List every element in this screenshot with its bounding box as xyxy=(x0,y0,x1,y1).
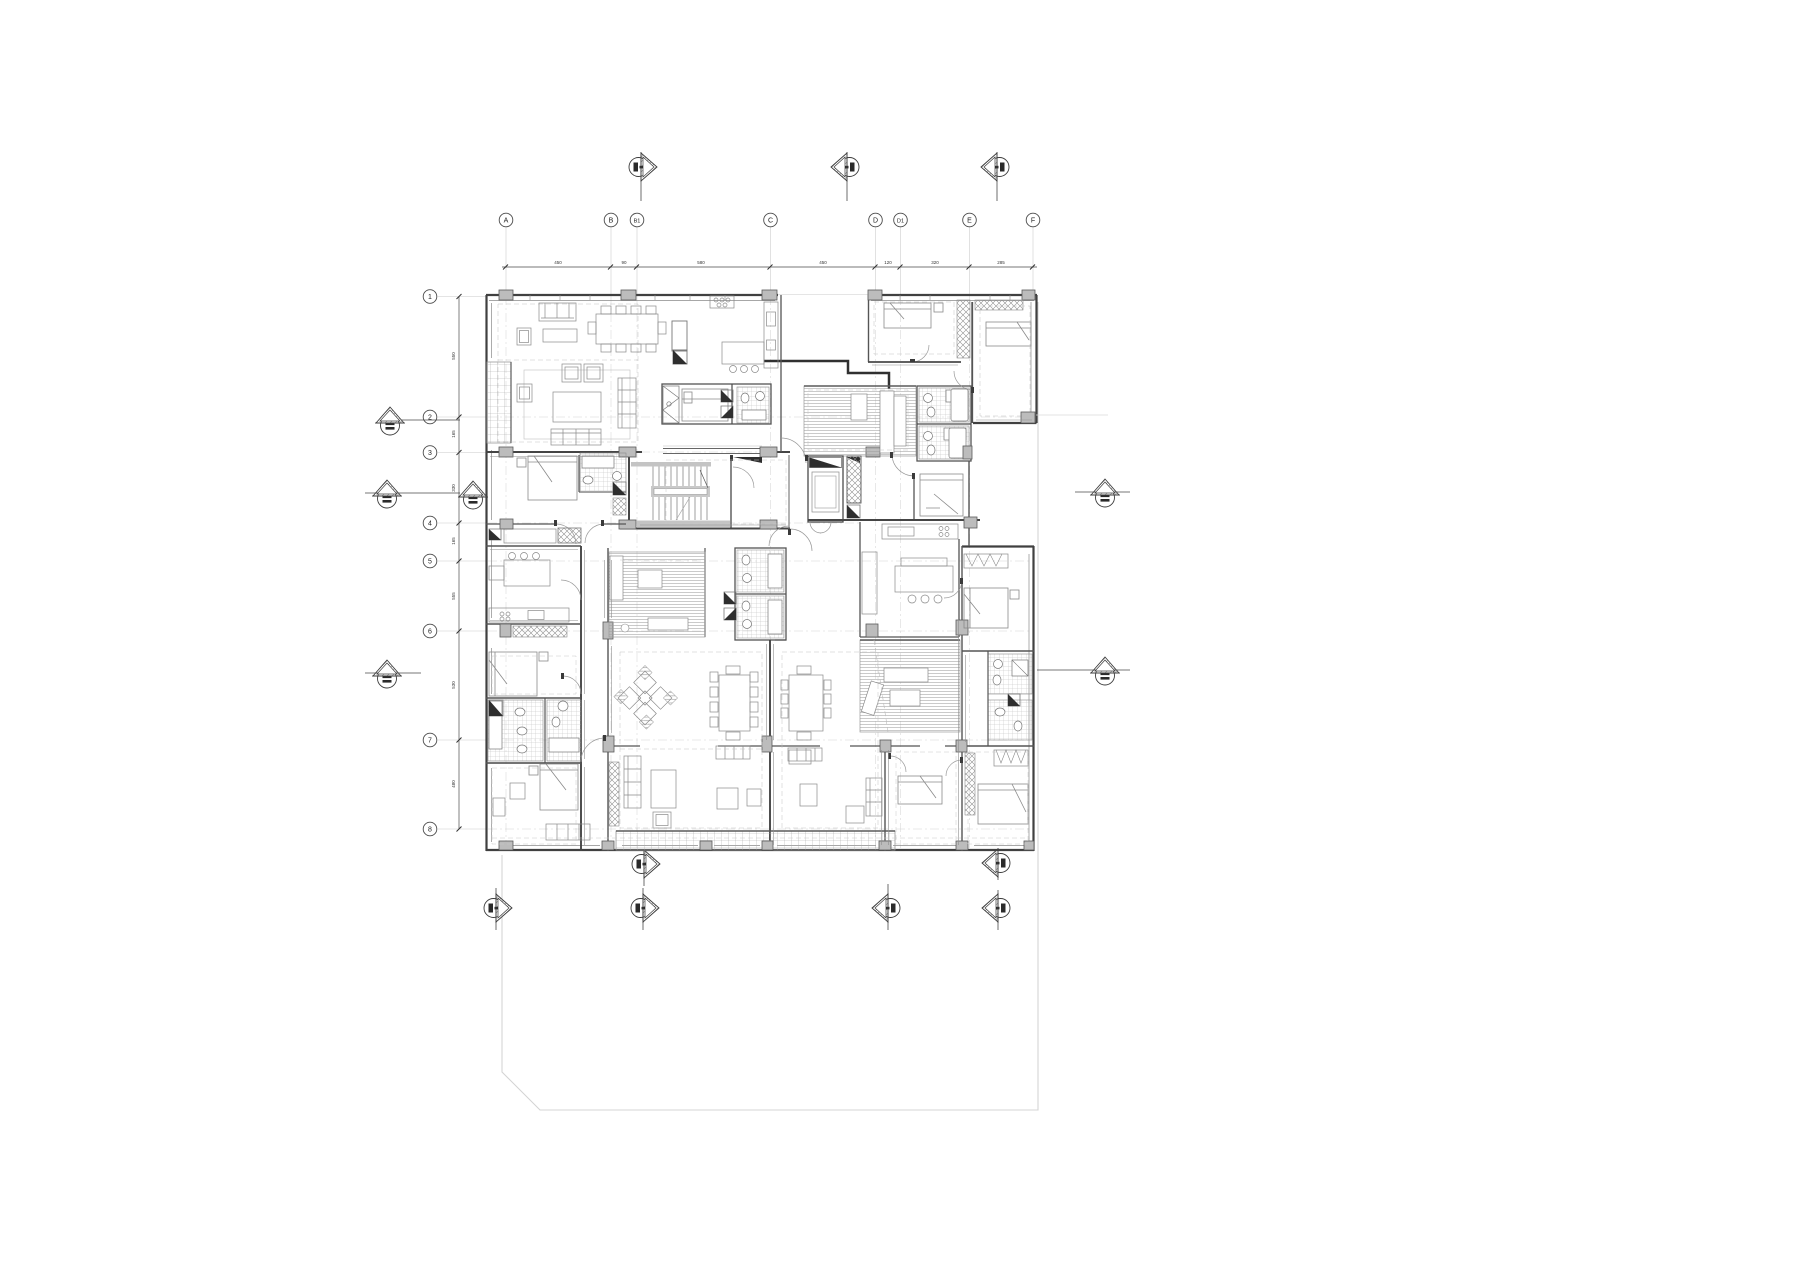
svg-text:B: B xyxy=(609,218,614,225)
svg-text:165: 165 xyxy=(451,430,456,438)
svg-text:4: 4 xyxy=(428,521,432,528)
svg-text:B1: B1 xyxy=(634,219,641,225)
svg-text:3: 3 xyxy=(428,450,432,457)
svg-text:2: 2 xyxy=(428,415,432,422)
svg-text:550: 550 xyxy=(451,352,456,360)
svg-text:165: 165 xyxy=(451,537,456,545)
svg-text:D: D xyxy=(873,218,878,225)
svg-text:8: 8 xyxy=(428,827,432,834)
svg-text:330: 330 xyxy=(451,484,456,492)
svg-text:D1: D1 xyxy=(897,219,904,225)
svg-text:90: 90 xyxy=(621,260,627,265)
svg-text:F: F xyxy=(1031,218,1035,225)
svg-text:580: 580 xyxy=(697,260,705,265)
svg-text:1: 1 xyxy=(428,294,432,301)
svg-text:450: 450 xyxy=(554,260,562,265)
svg-text:555: 555 xyxy=(451,592,456,600)
svg-text:285: 285 xyxy=(997,260,1005,265)
svg-text:6: 6 xyxy=(428,629,432,636)
svg-text:E: E xyxy=(967,218,972,225)
svg-text:480: 480 xyxy=(451,780,456,788)
svg-text:A: A xyxy=(504,218,509,225)
svg-text:5: 5 xyxy=(428,559,432,566)
svg-text:C: C xyxy=(768,218,773,225)
svg-text:450: 450 xyxy=(819,260,827,265)
svg-text:320: 320 xyxy=(931,260,939,265)
svg-text:120: 120 xyxy=(884,260,892,265)
svg-text:530: 530 xyxy=(451,681,456,689)
svg-text:7: 7 xyxy=(428,738,432,745)
